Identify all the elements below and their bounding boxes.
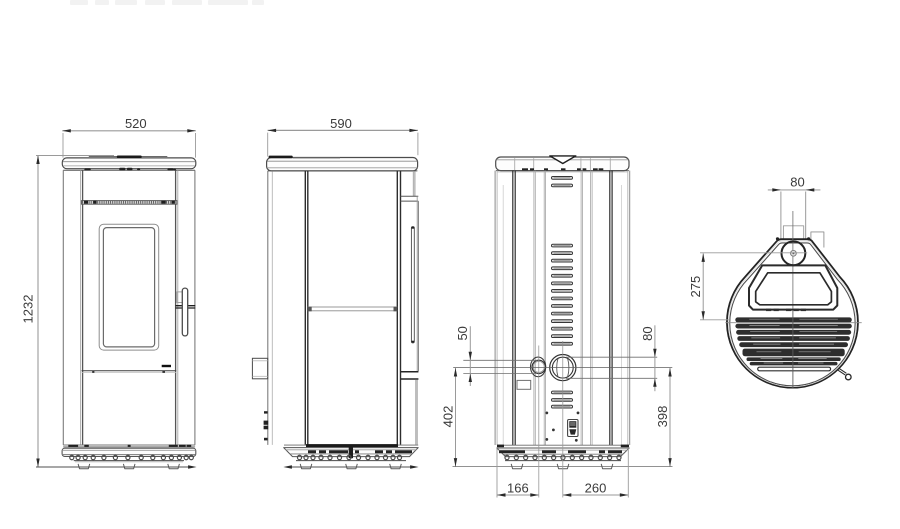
svg-text:402: 402 [440,406,455,428]
svg-text:590: 590 [330,116,352,131]
svg-text:166: 166 [507,481,529,496]
svg-text:520: 520 [125,116,147,131]
svg-text:275: 275 [688,276,703,298]
svg-text:1232: 1232 [21,295,36,324]
svg-text:80: 80 [790,175,804,190]
svg-text:80: 80 [640,326,655,340]
svg-text:260: 260 [585,481,607,496]
svg-text:398: 398 [655,406,670,428]
svg-text:50: 50 [455,326,470,340]
